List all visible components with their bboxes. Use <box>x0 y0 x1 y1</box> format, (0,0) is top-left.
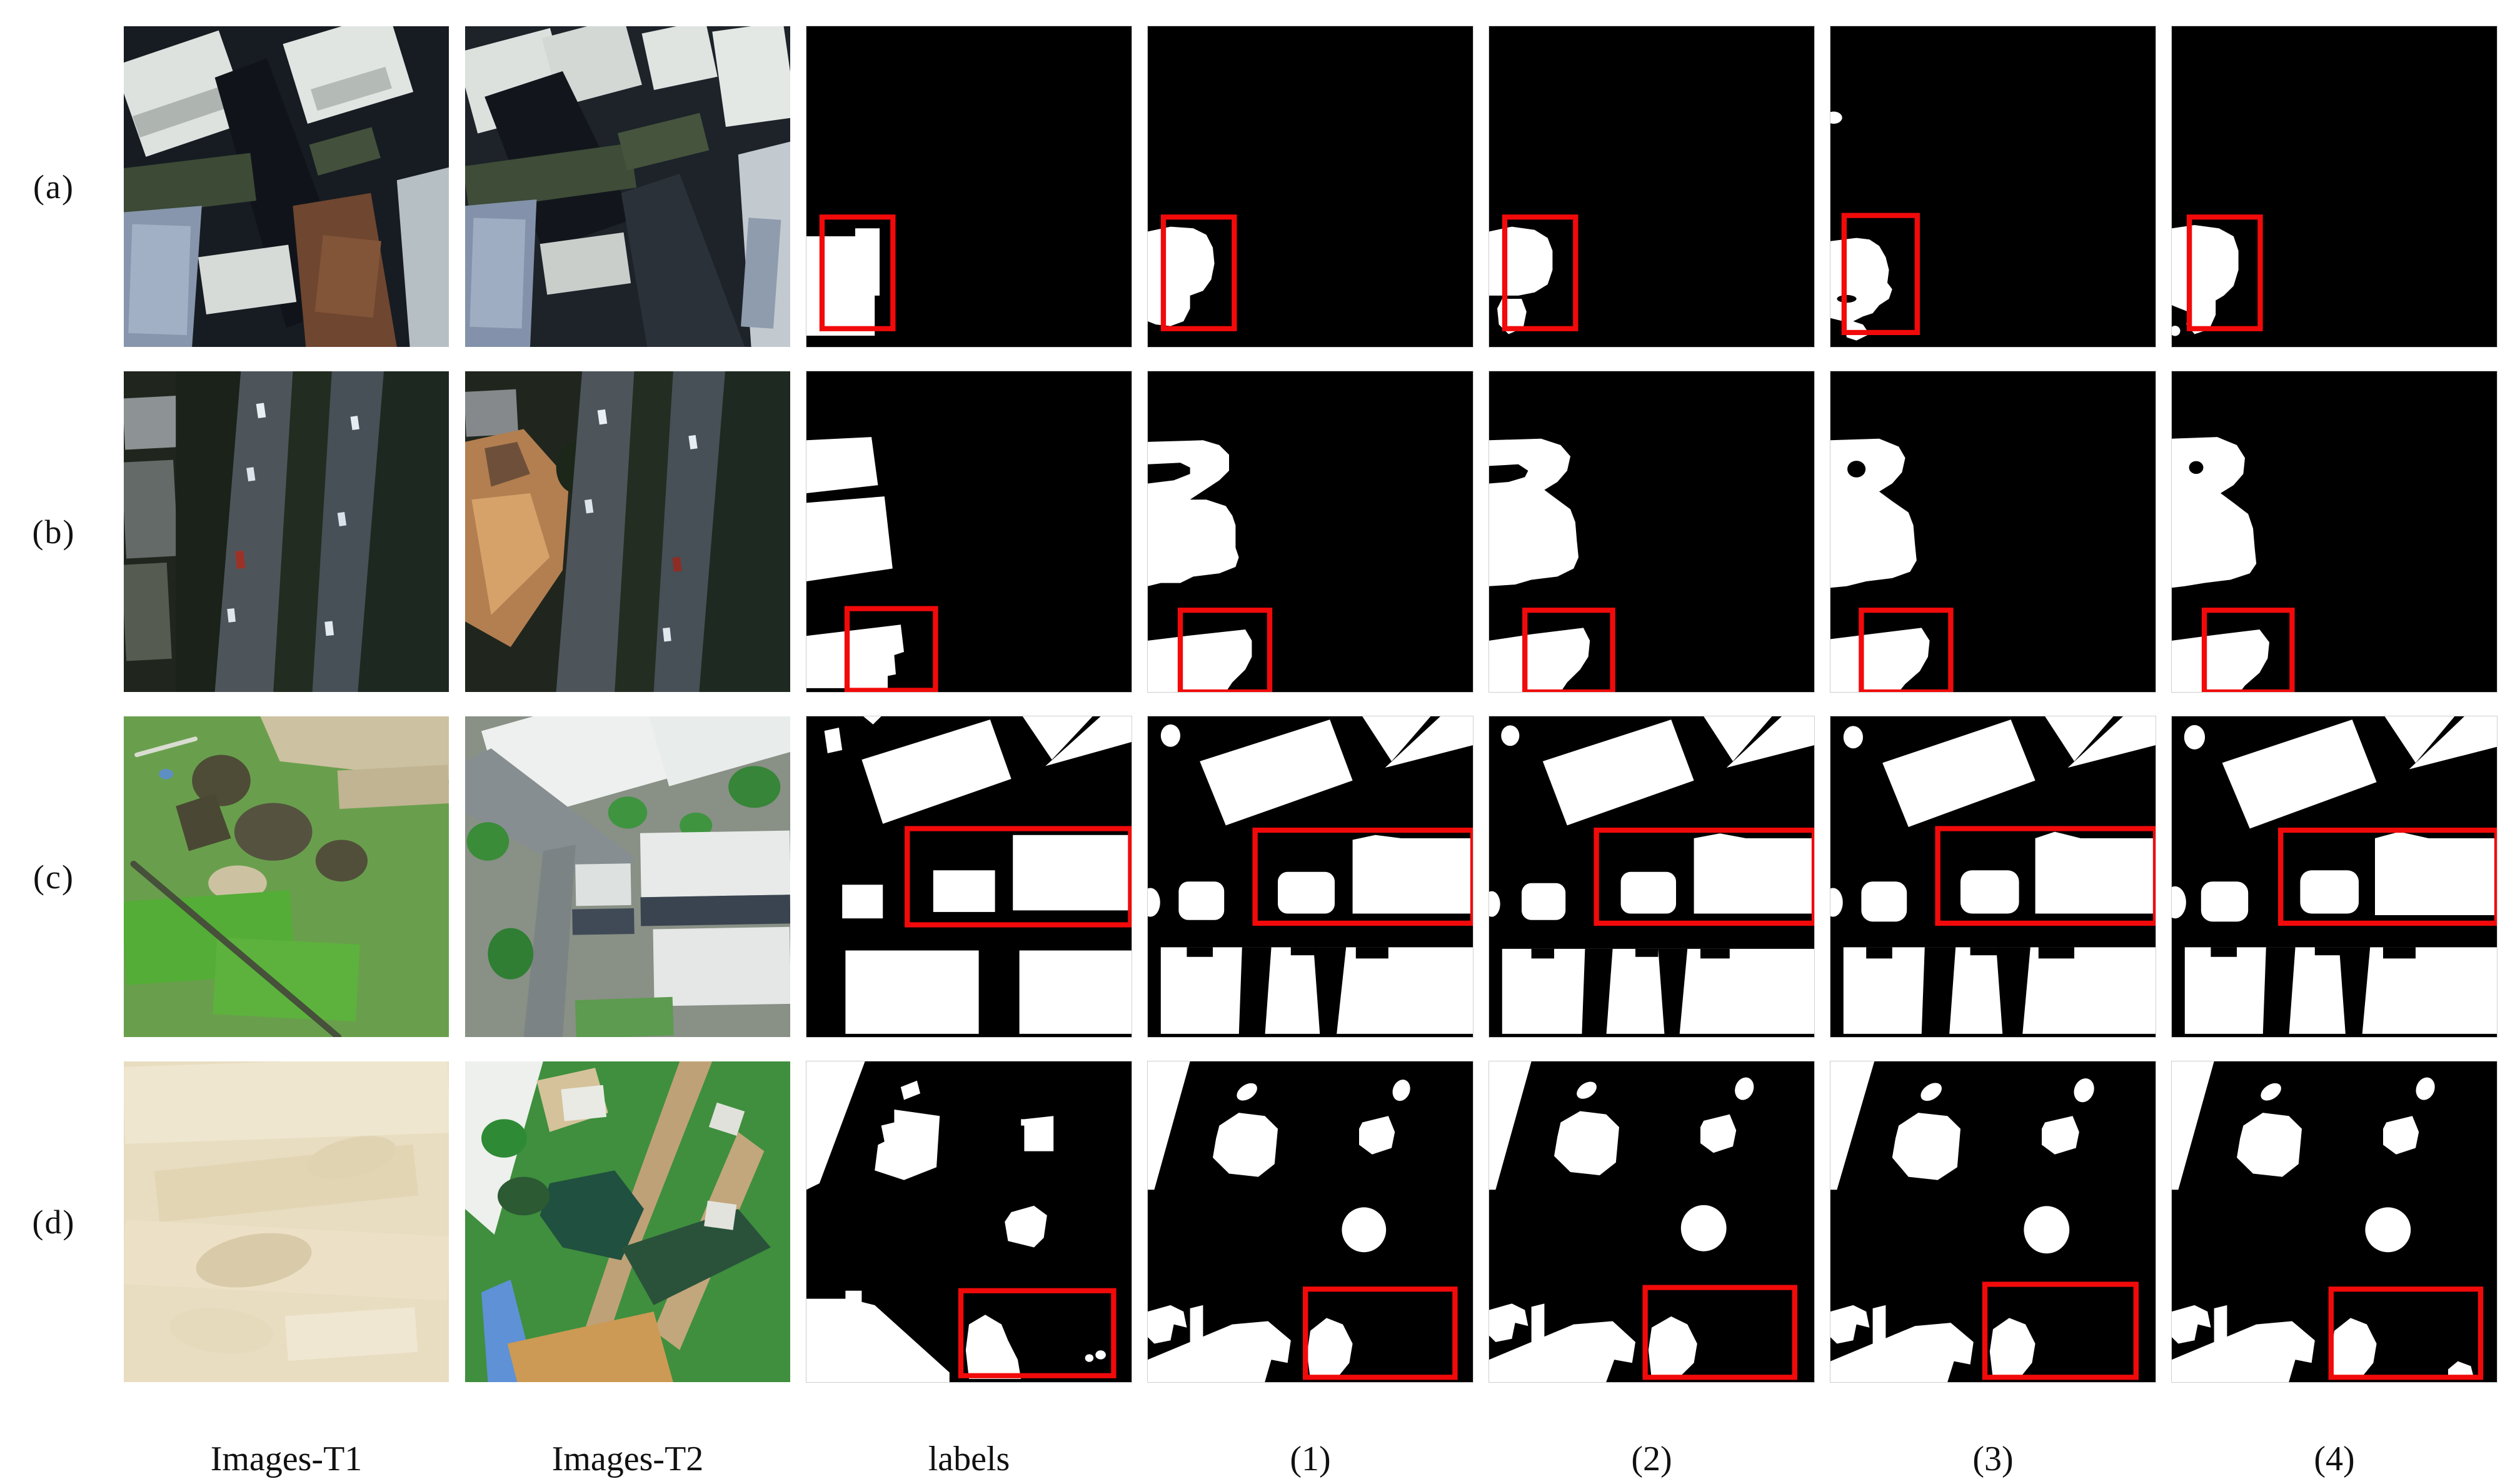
mask-image <box>806 716 1132 1037</box>
cell-b-pred-3 <box>1830 371 2156 692</box>
satellite-image <box>465 1061 790 1382</box>
row-label-c: (c) <box>0 716 108 1037</box>
cell-c-pred-1 <box>1148 716 1473 1037</box>
cell-d-labels <box>806 1061 1132 1382</box>
caption-images-t1: Images-T1 <box>124 1406 449 1484</box>
mask-image <box>806 371 1132 692</box>
caption-method-4: (4) <box>2172 1406 2497 1484</box>
caption-method-3: (3) <box>1830 1406 2156 1484</box>
cell-c-pred-3 <box>1830 716 2156 1037</box>
cell-d-images-t1 <box>124 1061 449 1382</box>
mask-image <box>1148 1061 1473 1382</box>
cell-b-pred-2 <box>1489 371 1814 692</box>
mask-image <box>1489 371 1814 692</box>
cell-c-images-t1 <box>124 716 449 1037</box>
satellite-image <box>124 26 449 347</box>
mask-image <box>2172 1061 2497 1382</box>
paper-figure-page: (a) (b) (c) (d) Images-T1 Images-T2 labe… <box>0 0 2510 1484</box>
row-label-a: (a) <box>0 26 108 347</box>
mask-image <box>806 1061 1132 1382</box>
cell-a-pred-1 <box>1148 26 1473 347</box>
caption-labels: labels <box>806 1406 1132 1484</box>
row-label-d: (d) <box>0 1061 108 1382</box>
caption-method-2: (2) <box>1489 1406 1814 1484</box>
mask-image <box>2172 371 2497 692</box>
cell-a-pred-2 <box>1489 26 1814 347</box>
mask-image <box>1830 716 2156 1037</box>
cell-a-images-t1 <box>124 26 449 347</box>
mask-image <box>2172 716 2497 1037</box>
cell-d-images-t2 <box>465 1061 790 1382</box>
cell-b-pred-1 <box>1148 371 1473 692</box>
satellite-image <box>124 371 449 692</box>
cell-a-labels <box>806 26 1132 347</box>
cell-a-images-t2 <box>465 26 790 347</box>
cell-b-pred-4 <box>2172 371 2497 692</box>
satellite-image <box>465 26 790 347</box>
mask-image <box>2172 26 2497 347</box>
cell-b-labels <box>806 371 1132 692</box>
cell-d-pred-4 <box>2172 1061 2497 1382</box>
cell-b-images-t2 <box>465 371 790 692</box>
mask-image <box>1830 26 2156 347</box>
mask-image <box>1830 1061 2156 1382</box>
mask-image <box>1830 371 2156 692</box>
cell-c-pred-2 <box>1489 716 1814 1037</box>
satellite-image <box>124 716 449 1037</box>
figure-grid: (a) (b) (c) (d) Images-T1 Images-T2 labe… <box>0 0 2497 1484</box>
cell-c-pred-4 <box>2172 716 2497 1037</box>
caption-images-t2: Images-T2 <box>465 1406 790 1484</box>
mask-image <box>1489 1061 1814 1382</box>
cell-d-pred-2 <box>1489 1061 1814 1382</box>
mask-image <box>1489 26 1814 347</box>
row-label-b: (b) <box>0 371 108 692</box>
cell-d-pred-3 <box>1830 1061 2156 1382</box>
cell-b-images-t1 <box>124 371 449 692</box>
caption-method-1: (1) <box>1148 1406 1473 1484</box>
mask-image <box>806 26 1132 347</box>
cell-c-images-t2 <box>465 716 790 1037</box>
satellite-image <box>465 716 790 1037</box>
cell-a-pred-4 <box>2172 26 2497 347</box>
mask-image <box>1489 716 1814 1037</box>
mask-image <box>1148 371 1473 692</box>
cell-c-labels <box>806 716 1132 1037</box>
mask-image <box>1148 716 1473 1037</box>
satellite-image <box>465 371 790 692</box>
cell-a-pred-3 <box>1830 26 2156 347</box>
cell-d-pred-1 <box>1148 1061 1473 1382</box>
satellite-image <box>124 1061 449 1382</box>
mask-image <box>1148 26 1473 347</box>
